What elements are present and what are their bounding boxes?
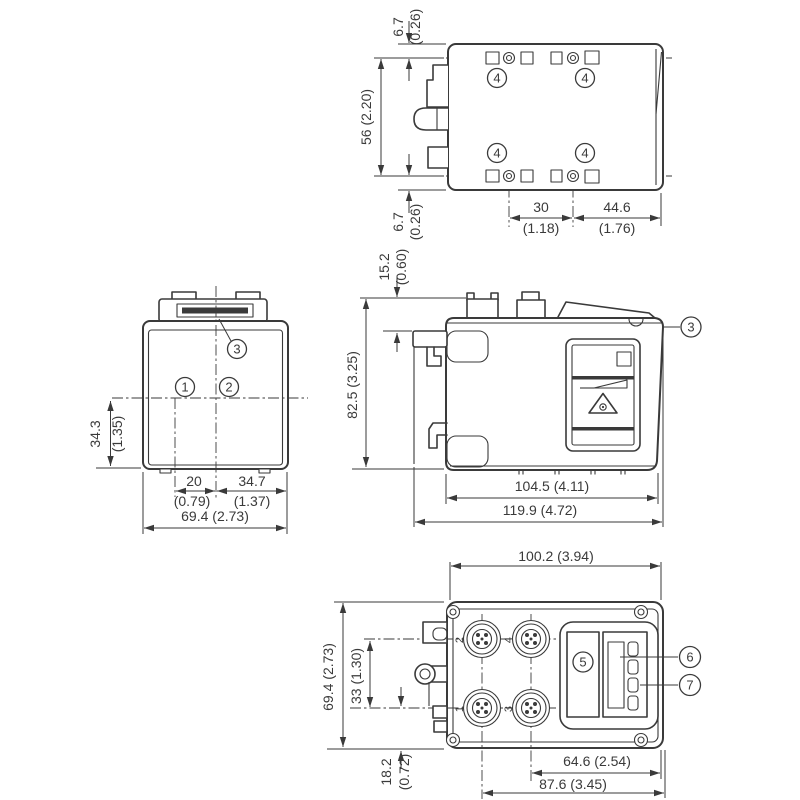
dim-119.9: 119.9 (4.72) xyxy=(503,502,577,518)
front-view-housing-outline xyxy=(143,321,288,469)
dim-33: 33 (1.30) xyxy=(348,648,364,704)
cap-slot xyxy=(182,308,248,314)
m12-connector-1 xyxy=(464,690,501,727)
callout-4: 4 xyxy=(581,146,588,161)
callout-3: 3 xyxy=(233,342,240,357)
callout-7: 7 xyxy=(686,678,693,693)
dim-44.6-in: (1.76) xyxy=(599,220,636,236)
top-view-side-connectors xyxy=(414,65,448,168)
dim-18.2-mm: 18.2 xyxy=(378,758,394,785)
callout-4: 4 xyxy=(493,71,500,86)
side-view-callout: 3 xyxy=(681,317,701,337)
port-label-4: 4 xyxy=(503,637,515,643)
top-view-housing-outline xyxy=(448,44,663,190)
dim-34.3-in: (1.35) xyxy=(109,416,125,453)
callout-3: 3 xyxy=(687,320,694,335)
dimensional-drawing: 4 4 4 4 6.7 (0.26) 56 (2.20) 6.7 (0.26) … xyxy=(0,0,800,800)
front-view: 1 2 3 34.3 (1.35) 20 (0.79) 34.7 (1.37) … xyxy=(87,286,308,534)
callout-5: 5 xyxy=(579,655,586,670)
front-view-top-cap xyxy=(159,292,267,322)
dim-20-mm: 20 xyxy=(186,473,202,489)
dim-34.3-mm: 34.3 xyxy=(87,420,103,447)
dim-69.4: 69.4 (2.73) xyxy=(181,508,249,524)
drawing-canvas: 4 4 4 4 6.7 (0.26) 56 (2.20) 6.7 (0.26) … xyxy=(0,0,800,800)
side-view-top-connectors xyxy=(467,292,545,319)
port-label-2: 2 xyxy=(454,637,466,643)
dim-87.6: 87.6 (3.45) xyxy=(539,776,607,792)
dim-20-in: (0.79) xyxy=(174,493,211,509)
top-view: 4 4 4 4 6.7 (0.26) 56 (2.20) 6.7 (0.26) … xyxy=(358,9,672,241)
dim-69.4-bottom: 69.4 (2.73) xyxy=(320,643,336,711)
dim-34.7-in: (1.37) xyxy=(234,493,271,509)
dim-30-in: (1.18) xyxy=(523,220,560,236)
display-left-pane xyxy=(567,632,599,717)
dim-30-mm: 30 xyxy=(533,199,549,215)
m12-connector-4 xyxy=(513,621,550,658)
side-view-display-wedge xyxy=(558,302,655,318)
callout-2: 2 xyxy=(225,380,232,395)
dim-6.7-top-mm: 6.7 xyxy=(390,17,406,37)
callout-6: 6 xyxy=(686,650,693,665)
port-label-1: 1 xyxy=(454,706,466,712)
m12-connector-3 xyxy=(513,690,550,727)
dim-104.5: 104.5 (4.11) xyxy=(515,478,589,494)
port-label-3: 3 xyxy=(503,706,515,712)
dim-56: 56 (2.20) xyxy=(358,89,374,145)
dim-64.6: 64.6 (2.54) xyxy=(563,753,631,769)
callout-4: 4 xyxy=(493,146,500,161)
side-view: 3 15.2 (0.60) 82.5 (3.25) 104.5 (4.11) 1… xyxy=(344,249,701,527)
display-panel xyxy=(560,622,658,729)
display-right-pane xyxy=(603,632,647,717)
bottom-view-side-fittings xyxy=(415,622,447,732)
m12-connector-2 xyxy=(464,621,501,658)
dim-6.7-bottom-mm: 6.7 xyxy=(390,212,406,232)
dim-44.6-mm: 44.6 xyxy=(603,199,630,215)
dim-18.2-in: (0.72) xyxy=(396,754,412,791)
dim-100.2: 100.2 (3.94) xyxy=(518,548,594,564)
dim-6.7-bottom-in: (0.26) xyxy=(407,204,423,241)
bottom-view: 2 4 1 3 xyxy=(320,548,701,799)
dim-15.2-in: (0.60) xyxy=(393,249,409,286)
side-view-warning-label xyxy=(566,339,640,451)
dim-6.7-top-in: (0.26) xyxy=(407,9,423,46)
dim-15.2-mm: 15.2 xyxy=(376,253,392,280)
callout-1: 1 xyxy=(181,380,188,395)
dim-82.5: 82.5 (3.25) xyxy=(344,351,360,419)
callout-4: 4 xyxy=(581,71,588,86)
dim-34.7-mm: 34.7 xyxy=(238,473,265,489)
